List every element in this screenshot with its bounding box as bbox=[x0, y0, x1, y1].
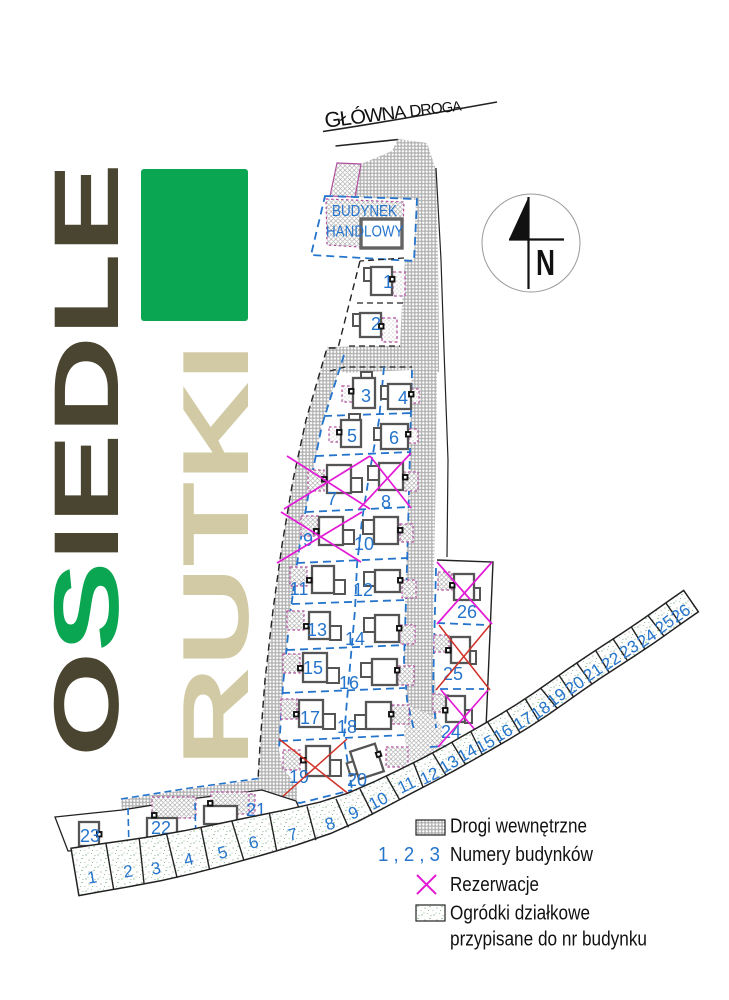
svg-text:1 , 2 , 3: 1 , 2 , 3 bbox=[378, 844, 440, 866]
svg-text:przypisane do nr budynku: przypisane do nr budynku bbox=[450, 929, 647, 951]
svg-text:BUDYNEK: BUDYNEK bbox=[332, 203, 397, 220]
svg-text:N: N bbox=[536, 242, 555, 283]
svg-text:6: 6 bbox=[389, 428, 399, 448]
svg-text:11: 11 bbox=[290, 579, 309, 599]
svg-text:5: 5 bbox=[347, 426, 357, 446]
svg-text:18: 18 bbox=[337, 717, 357, 737]
svg-text:Drogi wewnętrzne: Drogi wewnętrzne bbox=[450, 816, 587, 838]
svg-text:8: 8 bbox=[381, 492, 391, 512]
svg-text:16: 16 bbox=[339, 673, 359, 693]
svg-text:19: 19 bbox=[289, 767, 309, 787]
svg-text:4: 4 bbox=[398, 388, 408, 408]
svg-text:A: A bbox=[393, 102, 407, 123]
svg-text:25: 25 bbox=[443, 664, 463, 684]
svg-text:OSIEDLE: OSIEDLE bbox=[36, 163, 138, 757]
svg-text:Ogródki działkowe: Ogródki działkowe bbox=[450, 903, 590, 925]
svg-text:15: 15 bbox=[303, 658, 323, 678]
svg-text:17: 17 bbox=[300, 708, 320, 728]
svg-text:1: 1 bbox=[383, 272, 393, 292]
svg-text:14: 14 bbox=[345, 629, 365, 649]
svg-text:RUTKI: RUTKI bbox=[163, 343, 268, 767]
svg-text:23: 23 bbox=[80, 826, 100, 846]
svg-text:HANDLOWY: HANDLOWY bbox=[326, 224, 404, 241]
svg-text:10: 10 bbox=[354, 534, 374, 554]
svg-text:Rezerwacje: Rezerwacje bbox=[450, 874, 539, 896]
svg-text:Numery budynków: Numery budynków bbox=[450, 844, 593, 866]
svg-text:13: 13 bbox=[307, 620, 327, 640]
svg-text:2: 2 bbox=[371, 314, 381, 334]
svg-text:3: 3 bbox=[361, 386, 371, 406]
svg-text:12: 12 bbox=[353, 580, 373, 600]
svg-text:7: 7 bbox=[327, 489, 337, 509]
